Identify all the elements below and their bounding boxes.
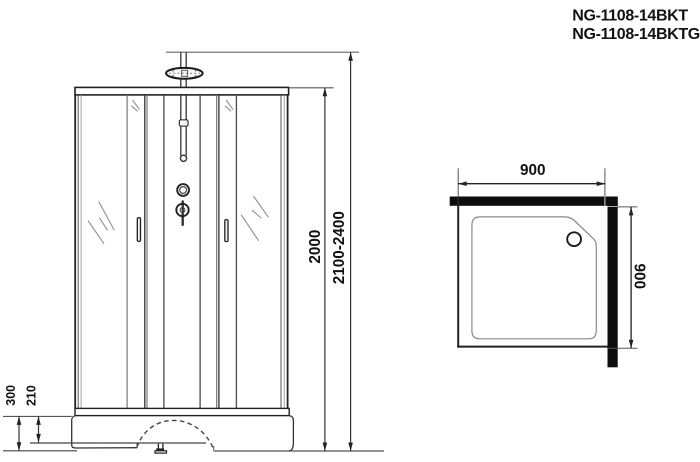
svg-text:300: 300 [4, 385, 18, 406]
svg-text:NG-1108-14BKT: NG-1108-14BKT [572, 7, 688, 24]
svg-text:900: 900 [520, 162, 546, 179]
svg-text:210: 210 [25, 385, 39, 406]
svg-text:2100-2400: 2100-2400 [331, 211, 348, 284]
svg-text:900: 900 [631, 264, 648, 290]
svg-text:NG-1108-14BKTG: NG-1108-14BKTG [572, 26, 700, 43]
svg-text:2000: 2000 [307, 230, 324, 264]
